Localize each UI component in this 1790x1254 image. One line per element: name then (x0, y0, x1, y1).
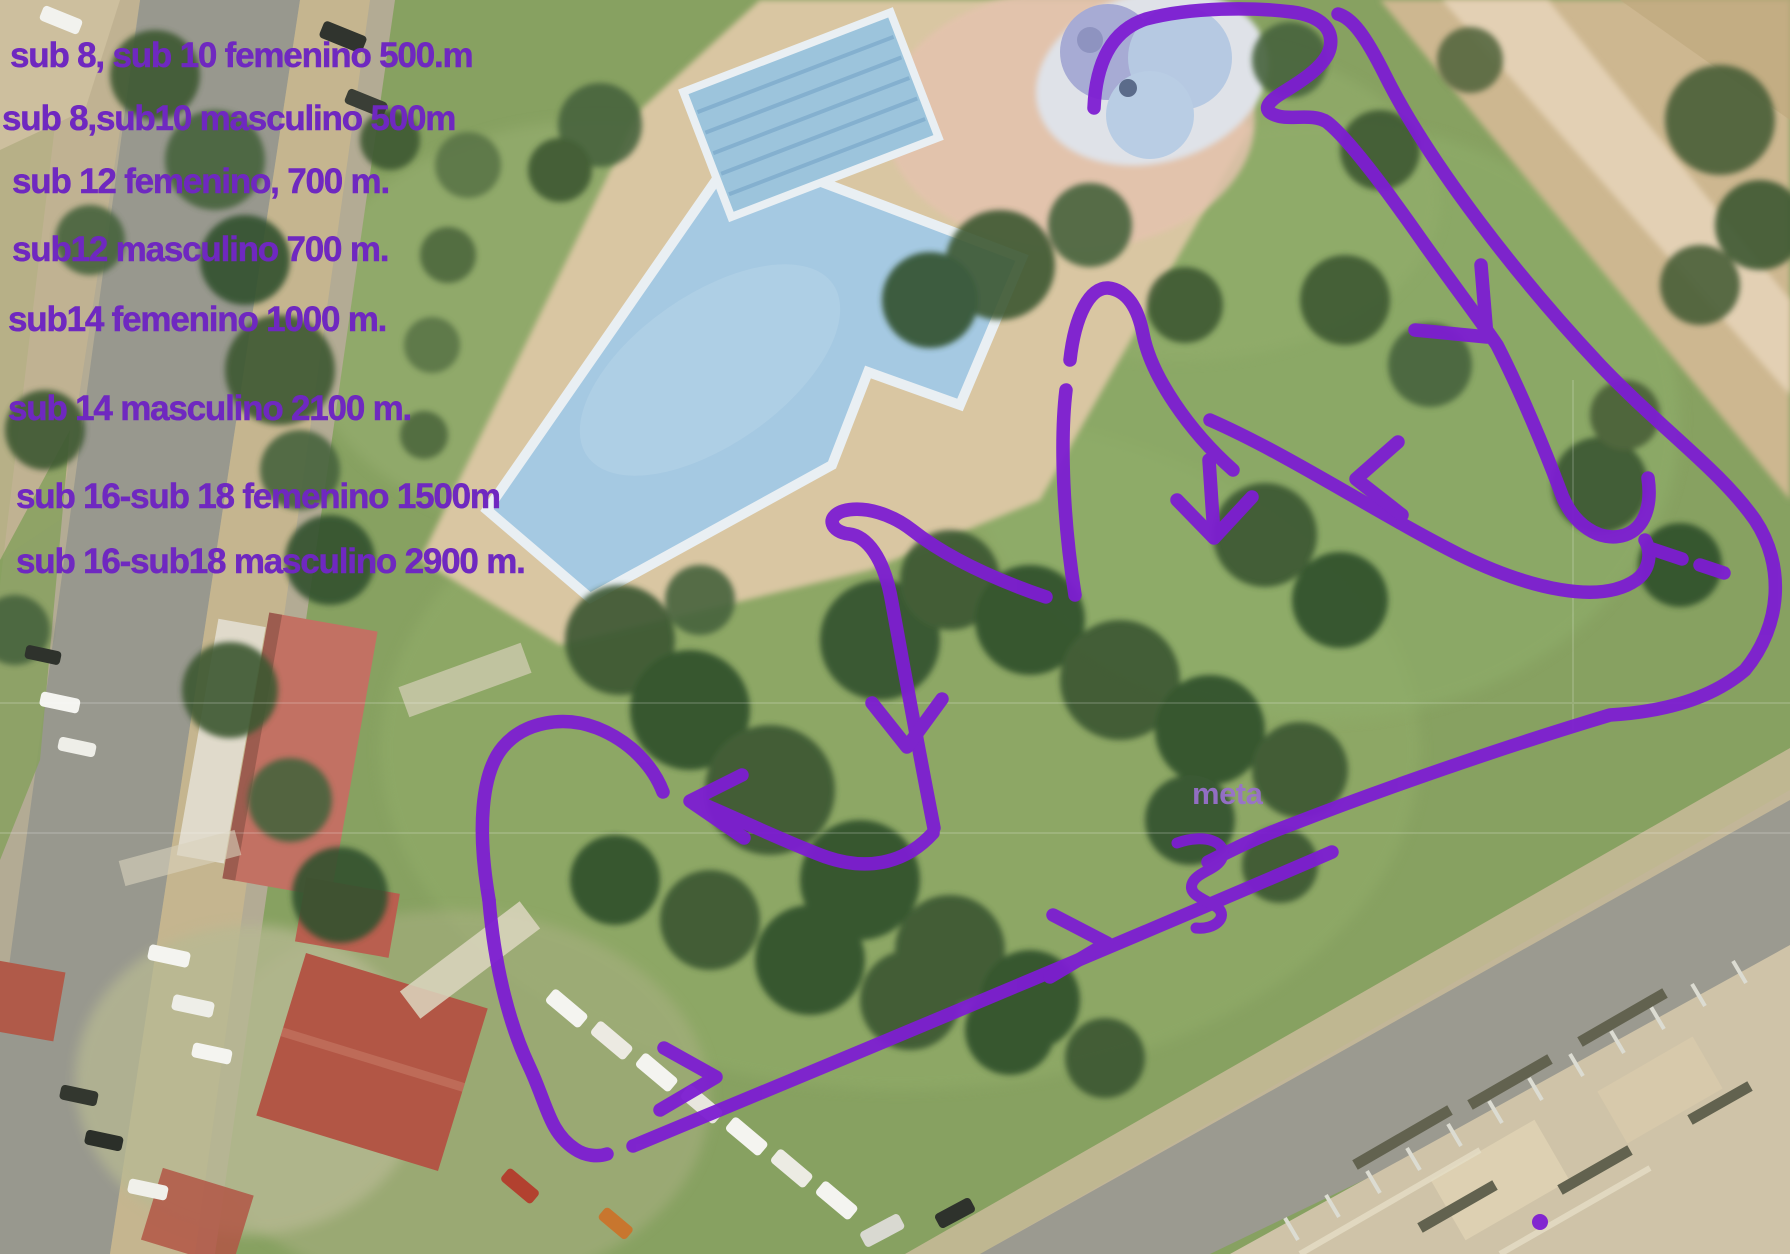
course-label-sub12-femenino: sub 12 femenino, 700 m. (12, 162, 389, 202)
route-arrow-stem (1209, 460, 1214, 535)
course-label-sub16-sub18-femenino: sub 16-sub 18 femenino 1500m (16, 477, 500, 517)
course-label-sub8-sub10-femenino: sub 8, sub 10 femenino 500.m (10, 36, 472, 76)
course-label-sub14-masculino: sub 14 masculino 2100 m. (8, 389, 411, 429)
finish-line-label: meta (1192, 776, 1262, 812)
course-label-sub12-masculino: sub12 masculino 700 m. (12, 230, 388, 270)
course-label-sub14-femenino: sub14 femenino 1000 m. (8, 300, 386, 340)
course-label-sub16-sub18-masculino: sub 16-sub18 masculino 2900 m. (16, 542, 525, 582)
course-label-sub8-sub10-masculino: sub 8,sub10 masculino 500m (2, 99, 455, 139)
route-dot (1532, 1214, 1548, 1230)
aerial-course-map: sub 8, sub 10 femenino 500.m sub 8,sub10… (0, 0, 1790, 1254)
